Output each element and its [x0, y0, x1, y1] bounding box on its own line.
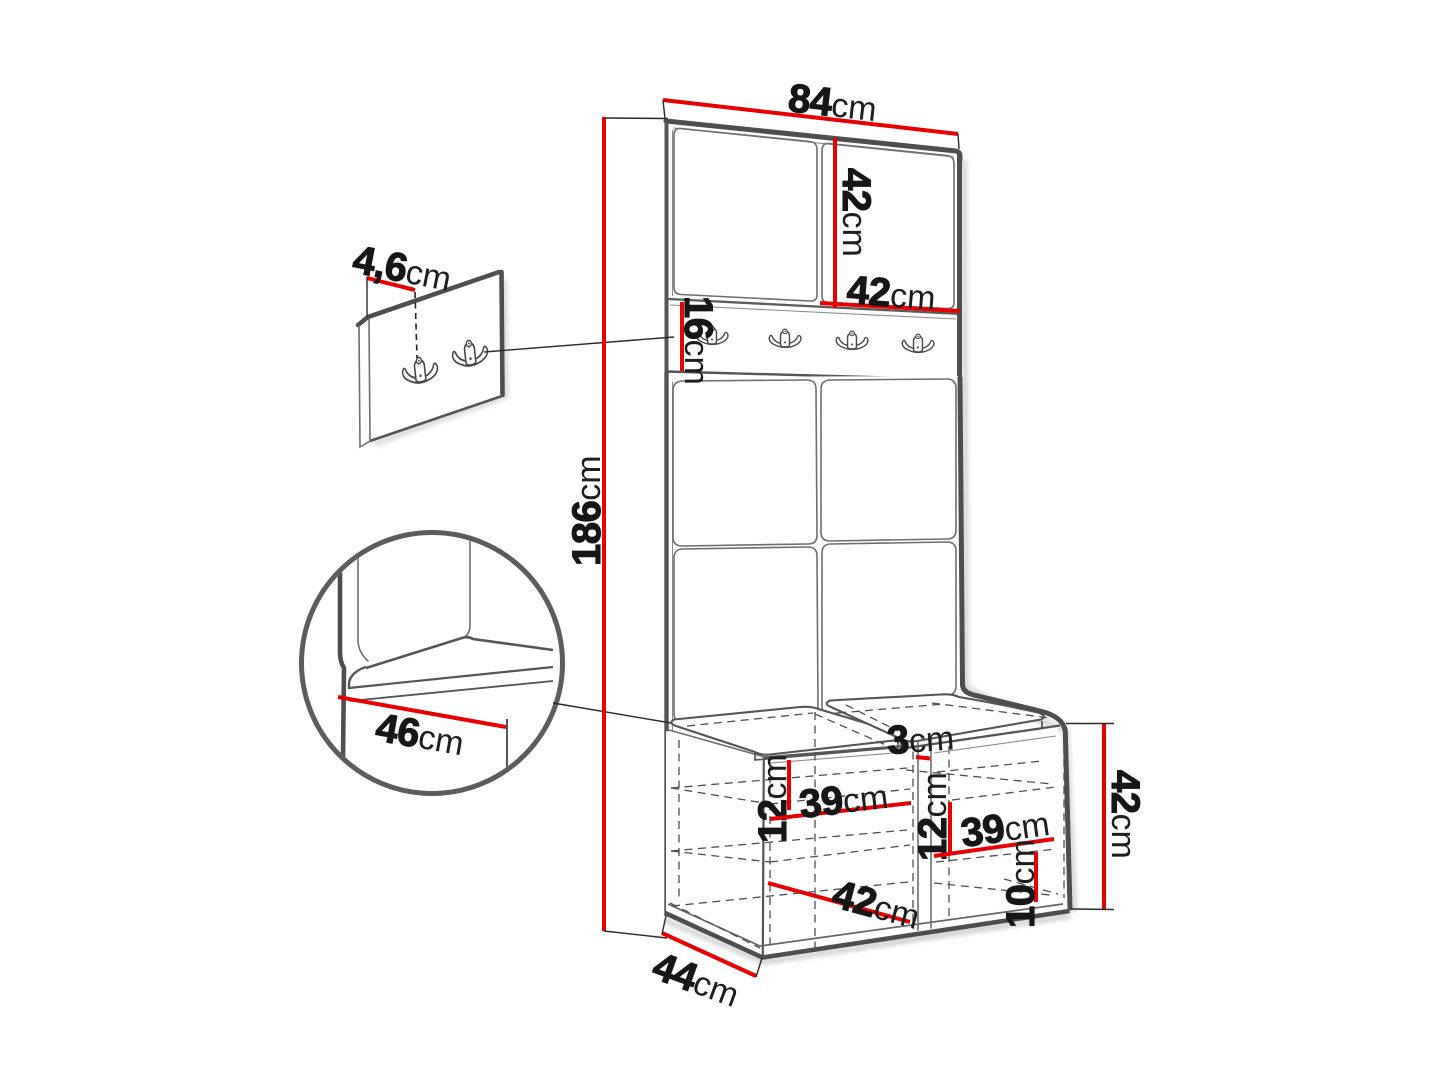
svg-text:42cm: 42cm — [834, 168, 878, 257]
svg-text:186cm: 186cm — [565, 455, 609, 566]
svg-text:12cm: 12cm — [751, 754, 795, 843]
svg-text:10cm: 10cm — [999, 839, 1043, 928]
svg-text:42cm: 42cm — [1103, 770, 1147, 859]
svg-text:16cm: 16cm — [676, 296, 720, 385]
svg-text:3cm: 3cm — [886, 714, 956, 763]
svg-text:12cm: 12cm — [911, 772, 955, 861]
